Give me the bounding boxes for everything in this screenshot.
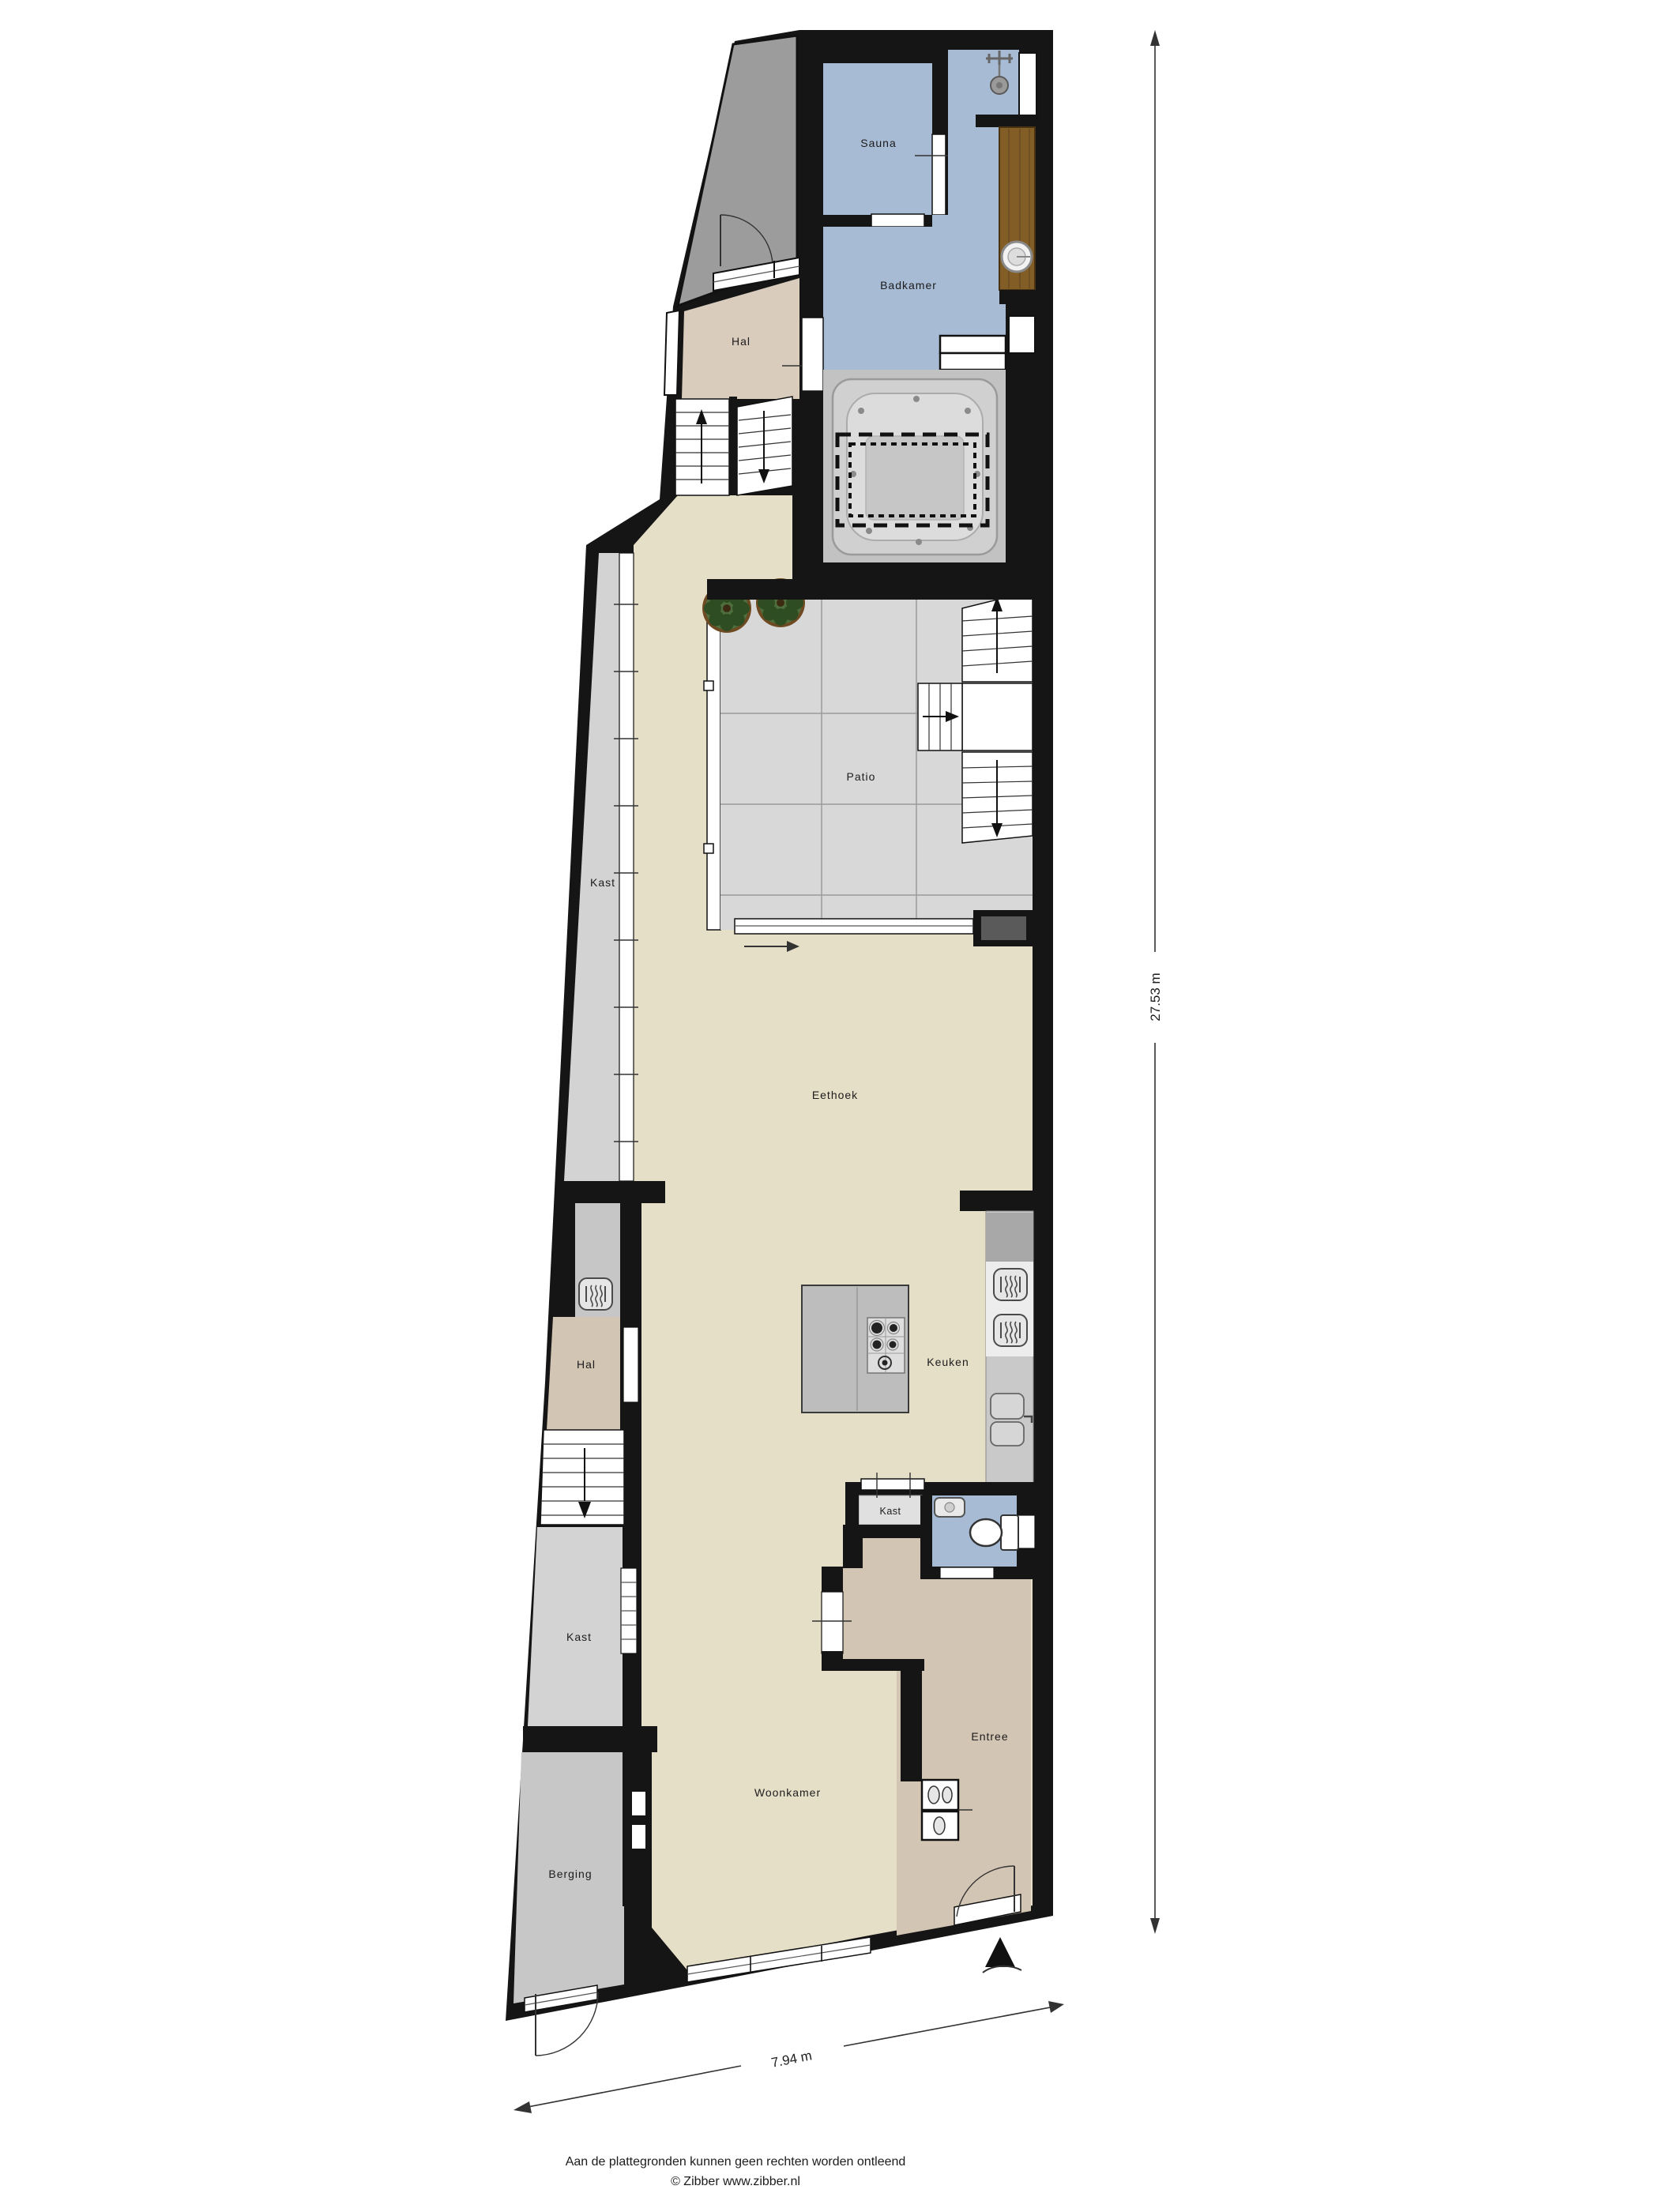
gas-hob-icon	[867, 1318, 905, 1373]
label-keuken: Keuken	[927, 1356, 969, 1368]
toilet-niche	[1017, 1515, 1035, 1548]
dimension-width: 7.94 m	[513, 2001, 1064, 2113]
patio-top-wall	[707, 579, 1053, 600]
badkamer-wall-niche	[1019, 53, 1036, 118]
dimension-width-label: 7.94 m	[770, 2048, 814, 2070]
north-arrow-icon	[983, 1937, 1021, 1973]
hal-left-window	[664, 310, 679, 395]
jacuzzi-icon	[823, 370, 1006, 562]
toilet-icon	[970, 1515, 1018, 1550]
bathroom-cabinet-icon	[940, 336, 1006, 370]
label-sauna: Sauna	[860, 137, 896, 149]
footer-disclaimer: Aan de plattegronden kunnen geen rechten…	[566, 2155, 906, 2169]
wall-under-counter	[999, 290, 1053, 304]
oven-icon	[994, 1269, 1027, 1300]
footer: Aan de plattegronden kunnen geen rechten…	[566, 2155, 906, 2188]
room-patio	[702, 578, 1033, 952]
label-kast-onder: Kast	[566, 1631, 592, 1643]
label-badkamer: Badkamer	[880, 279, 937, 292]
room-kast-klein	[859, 1473, 924, 1525]
hal-door	[623, 1327, 638, 1402]
kast-window	[861, 1479, 924, 1490]
wall-below-kast	[523, 1726, 657, 1752]
wall-stub-kitchen	[960, 1191, 1035, 1211]
dimension-height-label: 27.53 m	[1148, 972, 1163, 1021]
patio-step	[973, 910, 1033, 946]
bathroom-counter	[999, 127, 1035, 290]
corner-basin-icon	[935, 1498, 965, 1517]
room-kast-onder	[528, 1525, 641, 1726]
kitchen-counter	[986, 1211, 1033, 1489]
appliance-niche	[575, 1203, 634, 1317]
label-kast-strook: Kast	[590, 876, 615, 889]
room-hal-beneden	[547, 1317, 641, 1430]
wall-stub	[976, 115, 1036, 127]
oven-icon	[994, 1315, 1027, 1346]
label-patio: Patio	[847, 770, 876, 783]
sauna-window	[871, 214, 924, 227]
wall-cap	[558, 1181, 665, 1203]
label-entree: Entree	[971, 1730, 1008, 1743]
floorplan-page: 27.53 m 7.94 m Sauna Badkamer Hal Patio …	[0, 0, 1659, 2212]
microwave-icon	[579, 1278, 612, 1310]
staircase-upper	[675, 397, 792, 495]
kitchen-island	[802, 1285, 908, 1413]
label-eethoek: Eethoek	[812, 1089, 858, 1101]
label-woonkamer: Woonkamer	[754, 1786, 821, 1799]
label-berging: Berging	[548, 1868, 592, 1880]
patio-glass-wall	[707, 598, 720, 930]
label-hal-beneden: Hal	[577, 1358, 596, 1371]
sauna-door	[932, 134, 946, 215]
footer-copyright: © Zibber www.zibber.nl	[671, 2175, 800, 2188]
badkamer-niche-2	[1009, 316, 1035, 353]
folding-door	[621, 1568, 637, 1653]
floorplan-drawing: 27.53 m 7.94 m Sauna Badkamer Hal Patio …	[0, 0, 1659, 2212]
label-hal-boven: Hal	[732, 335, 750, 348]
staircase-lower	[540, 1426, 641, 1527]
wash-basin-icon	[1002, 242, 1032, 272]
wall-below-kast-klein	[859, 1525, 922, 1538]
dimension-height: 27.53 m	[1148, 30, 1163, 1934]
label-kast-klein: Kast	[879, 1506, 901, 1517]
